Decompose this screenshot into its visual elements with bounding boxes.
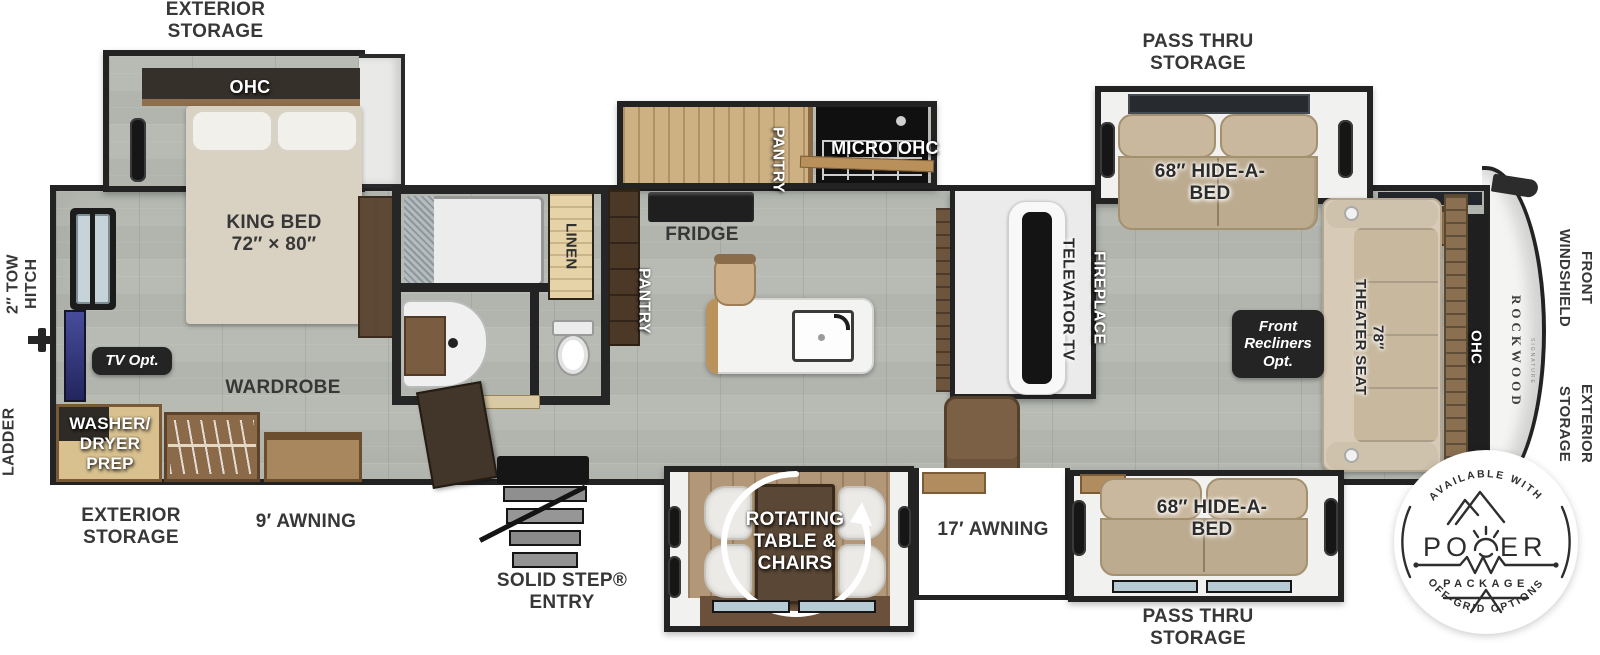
theater-cupholder-bottom xyxy=(1344,448,1359,463)
bathroom-divider-v xyxy=(530,283,539,401)
bedroom-slide-window xyxy=(130,118,146,182)
tow-hitch-label: 2″ TOW HITCH xyxy=(0,226,46,342)
king-bed-label: KING BED 72″ × 80″ xyxy=(200,210,348,258)
sofa-bottom-window-2 xyxy=(1206,580,1292,593)
dresser xyxy=(264,432,362,482)
pantry-slide-label: PANTRY xyxy=(764,112,790,208)
dinette-side-window-3 xyxy=(898,506,911,548)
hide-a-bed-top-label: 68″ HIDE-A- BED xyxy=(1134,158,1286,208)
pass-thru-hatch xyxy=(1128,94,1310,114)
pantry-wall-label: PANTRY xyxy=(630,252,656,350)
shower-wall xyxy=(404,196,434,286)
sofa-slide-top-window-right xyxy=(1338,120,1353,178)
brand-sub-label: SIGNATURE xyxy=(1527,330,1537,392)
bathroom-divider-h xyxy=(400,283,548,292)
sofa-slide-bottom-window-right xyxy=(1324,498,1338,556)
awning-9-label: 9′ AWNING xyxy=(240,509,372,535)
televator-tv-label: TELEVATOR TV xyxy=(1052,213,1082,385)
wardrobe-rod xyxy=(168,444,256,447)
exterior-storage-top-label: EXTERIOR STORAGE xyxy=(148,0,283,42)
televator-tv-screen xyxy=(1022,212,1052,384)
fridge xyxy=(648,192,754,222)
badge-power-right: ER xyxy=(1500,532,1548,562)
king-bed-pillow-right xyxy=(276,110,358,152)
badge-package-text: PACKAGE xyxy=(1443,578,1529,590)
dinette-window-1 xyxy=(712,600,790,613)
theater-cupholder-top xyxy=(1344,206,1359,221)
island-stool-back xyxy=(714,254,756,264)
dinette-side-window-1 xyxy=(668,506,681,548)
step-tread-4 xyxy=(512,552,578,568)
brand-logo: ROCKWOOD xyxy=(1504,276,1528,428)
badge-power-left: PO xyxy=(1423,532,1472,562)
hide-a-bed-bottom-label: 68″ HIDE-A- BED xyxy=(1136,494,1288,544)
power-package-badge: AVAILABLE WITH PO ER PACKAGE OFF-GRID OP… xyxy=(1392,448,1580,636)
kitchen-sink-drain xyxy=(818,334,825,341)
sofa-slide-top-window-left xyxy=(1100,122,1115,178)
fireplace-label: FIREPLACE xyxy=(1084,236,1112,360)
stove-knob xyxy=(896,116,906,126)
front-ohc-label: OHC xyxy=(1464,316,1488,378)
kitchen-island-wood-edge xyxy=(706,298,718,374)
awning-17-label: 17′ AWNING xyxy=(928,516,1058,544)
fridge-label: FRIDGE xyxy=(654,224,750,246)
theater-armrest-top xyxy=(1326,200,1438,228)
wardrobe-label: WARDROBE xyxy=(210,376,356,400)
linen-label: LINEN xyxy=(552,196,590,296)
theater-seat-label: 78″ THEATER SEAT xyxy=(1336,242,1402,432)
tv-opt-badge: TV Opt. xyxy=(92,347,172,375)
front-windshield-label: FRONT WINDSHIELD xyxy=(1550,202,1600,354)
bedroom-window-mullion xyxy=(90,214,95,304)
king-bed-pillow-left xyxy=(191,110,273,152)
front-recliners-opt-badge: Front Recliners Opt. xyxy=(1232,310,1324,378)
washer-dryer-label: WASHER/ DRYER PREP xyxy=(54,410,166,478)
ladder-label: LADDER xyxy=(0,390,22,494)
step-mechanism xyxy=(497,456,589,484)
pass-thru-bottom-label: PASS THRU STORAGE xyxy=(1128,602,1268,654)
sofa-bottom-window-1 xyxy=(1112,580,1198,593)
rotating-table-label: ROTATING TABLE & CHAIRS xyxy=(722,500,868,584)
sofa-slide-bottom-window-left xyxy=(1072,500,1086,556)
sofa-top-pillow-right xyxy=(1220,114,1318,158)
entertainment-side-cabinet xyxy=(936,208,950,392)
awning-bay-wood-step xyxy=(922,472,986,494)
island-stool xyxy=(714,258,756,306)
micro-ohc-label: MICRO OHC xyxy=(818,136,952,160)
exterior-storage-bottom-label: EXTERIOR STORAGE xyxy=(66,504,196,550)
dinette-side-window-2 xyxy=(668,556,681,598)
bedroom-tv xyxy=(64,310,86,402)
pass-thru-top-label: PASS THRU STORAGE xyxy=(1128,26,1268,80)
step-tread-3 xyxy=(509,530,581,546)
toilet-bowl xyxy=(556,334,590,376)
wardrobe-hangers xyxy=(170,420,254,474)
vanity-faucet xyxy=(448,338,458,348)
sofa-top-pillow-left xyxy=(1118,114,1216,158)
floorplan-diagram: ROCKWOOD SIGNATURE OHC KING BED 72″ × 80… xyxy=(0,0,1600,655)
exterior-storage-box xyxy=(359,54,405,188)
vanity-cabinet xyxy=(404,316,446,376)
bedroom-ohc-label: OHC xyxy=(205,74,295,100)
solid-step-entry-label: SOLID STEP® ENTRY xyxy=(470,566,654,618)
dinette-window-2 xyxy=(798,600,876,613)
